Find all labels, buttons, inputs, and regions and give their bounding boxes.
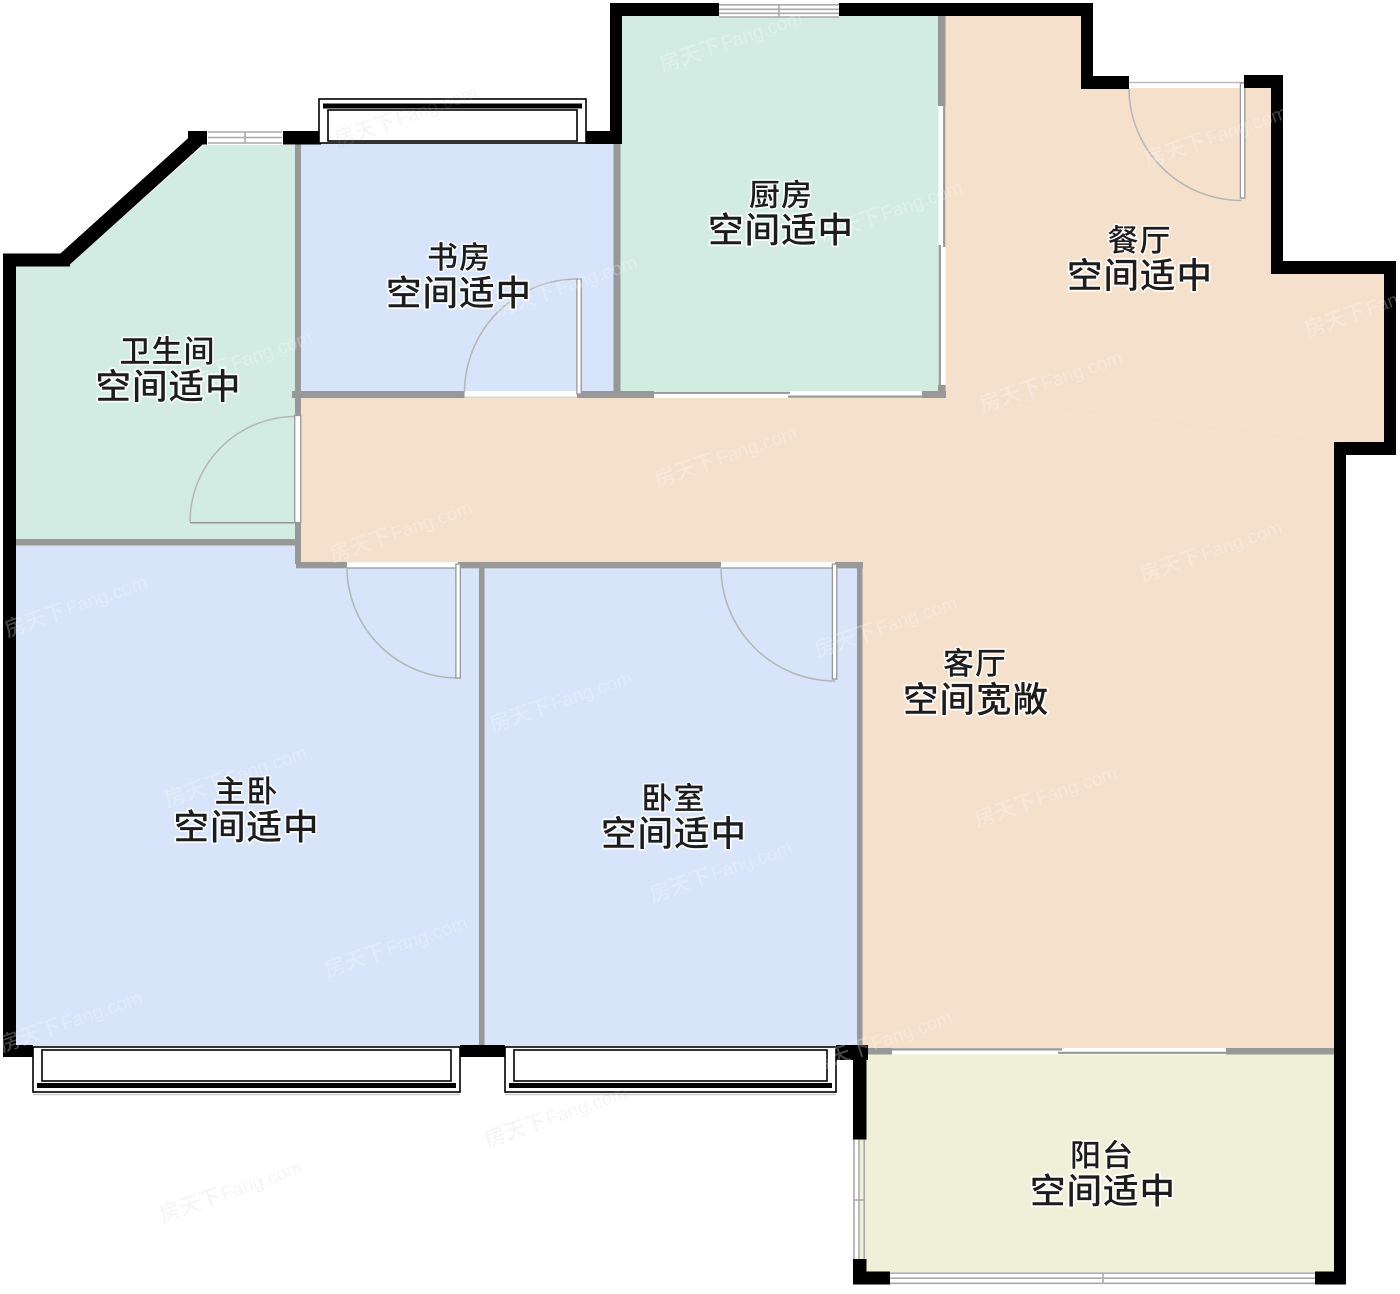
svg-text:Fang.com: Fang.com <box>218 1158 305 1205</box>
